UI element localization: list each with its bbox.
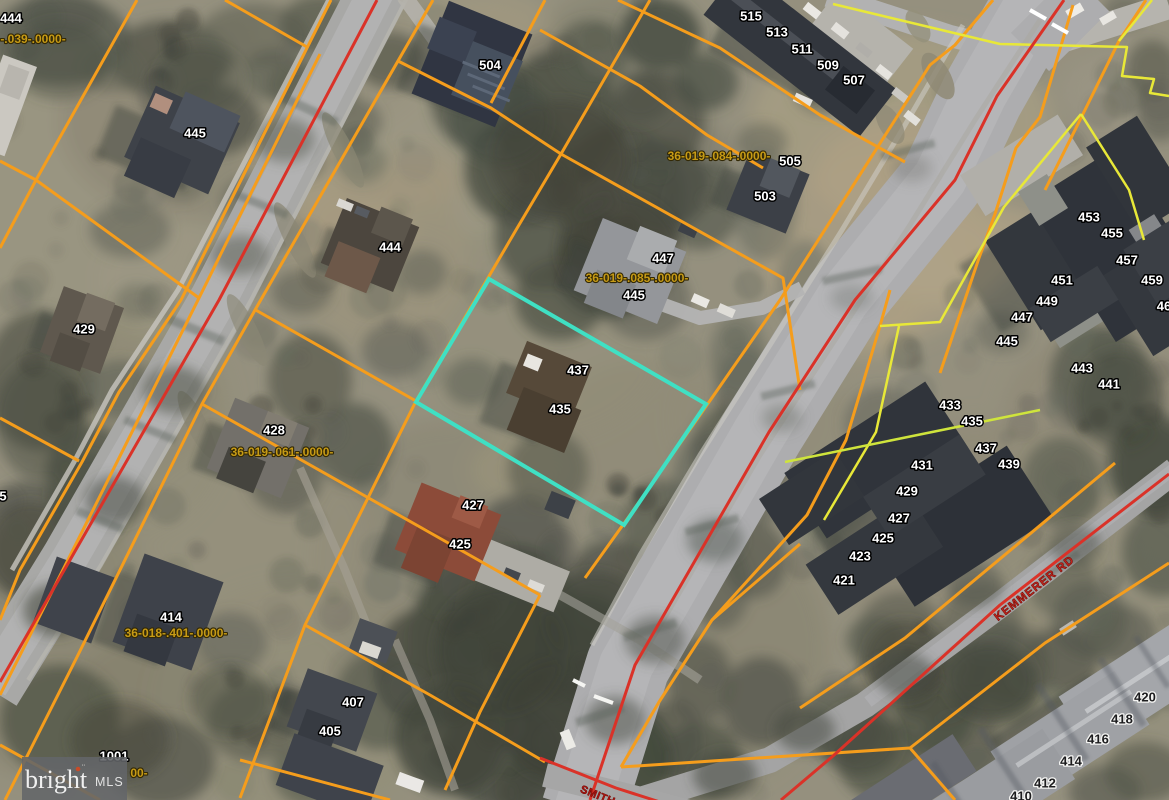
svg-text:447: 447 (1011, 310, 1033, 325)
svg-text:423: 423 (849, 549, 871, 564)
svg-text:435: 435 (549, 402, 571, 417)
svg-text:444: 444 (0, 11, 22, 26)
svg-text:511: 511 (792, 42, 813, 57)
svg-text:437: 437 (975, 441, 997, 456)
svg-text:437: 437 (567, 363, 589, 378)
svg-text:444: 444 (379, 240, 401, 255)
svg-text:-.039-.0000-: -.039-.0000- (0, 32, 65, 46)
svg-text:427: 427 (888, 511, 910, 526)
svg-text:412: 412 (1034, 776, 1056, 791)
svg-text:418: 418 (1111, 712, 1133, 727)
svg-text:503: 503 (754, 189, 776, 204)
svg-text:455: 455 (1101, 226, 1123, 241)
svg-text:5: 5 (0, 489, 7, 504)
svg-text:457: 457 (1116, 253, 1138, 268)
svg-text:425: 425 (449, 537, 471, 552)
svg-text:421: 421 (833, 573, 855, 588)
svg-text:439: 439 (998, 457, 1020, 472)
svg-text:407: 407 (342, 695, 364, 710)
svg-text:46: 46 (1157, 299, 1169, 314)
svg-text:¨: ¨ (82, 763, 85, 773)
svg-text:414: 414 (1060, 754, 1082, 769)
svg-text:451: 451 (1051, 273, 1073, 288)
svg-text:433: 433 (939, 398, 961, 413)
svg-text:504: 504 (479, 58, 501, 73)
svg-text:429: 429 (73, 322, 95, 337)
svg-text:443: 443 (1071, 361, 1093, 376)
svg-text:36-018-.401-.0000-: 36-018-.401-.0000- (125, 626, 228, 640)
svg-text:429: 429 (896, 484, 918, 499)
svg-text:36-019-.085-.0000-: 36-019-.085-.0000- (586, 271, 689, 285)
svg-text:416: 416 (1087, 732, 1109, 747)
svg-text:425: 425 (872, 531, 894, 546)
svg-text:449: 449 (1036, 294, 1058, 309)
svg-text:427: 427 (462, 498, 484, 513)
svg-text:420: 420 (1134, 690, 1156, 705)
svg-text:435: 435 (961, 414, 983, 429)
svg-text:445: 445 (184, 126, 206, 141)
svg-text:459: 459 (1141, 273, 1163, 288)
svg-text:507: 507 (843, 73, 865, 88)
svg-text:445: 445 (996, 334, 1018, 349)
svg-text:505: 505 (779, 154, 801, 169)
svg-text:453: 453 (1078, 210, 1100, 225)
svg-text:MLS: MLS (95, 775, 124, 789)
svg-text:515: 515 (740, 9, 762, 24)
svg-text:445: 445 (623, 288, 645, 303)
svg-text:00-: 00- (130, 766, 147, 780)
svg-text:431: 431 (911, 458, 933, 473)
svg-text:414: 414 (160, 610, 182, 625)
svg-text:428: 428 (263, 423, 285, 438)
svg-text:410: 410 (1010, 789, 1032, 800)
svg-text:441: 441 (1098, 377, 1120, 392)
svg-text:509: 509 (817, 58, 839, 73)
svg-text:405: 405 (319, 724, 341, 739)
svg-text:513: 513 (766, 25, 788, 40)
svg-text:36-019-.061-.0000-: 36-019-.061-.0000- (231, 445, 334, 459)
svg-text:36-019-.084-.0000-: 36-019-.084-.0000- (668, 149, 771, 163)
svg-text:447: 447 (652, 251, 674, 266)
